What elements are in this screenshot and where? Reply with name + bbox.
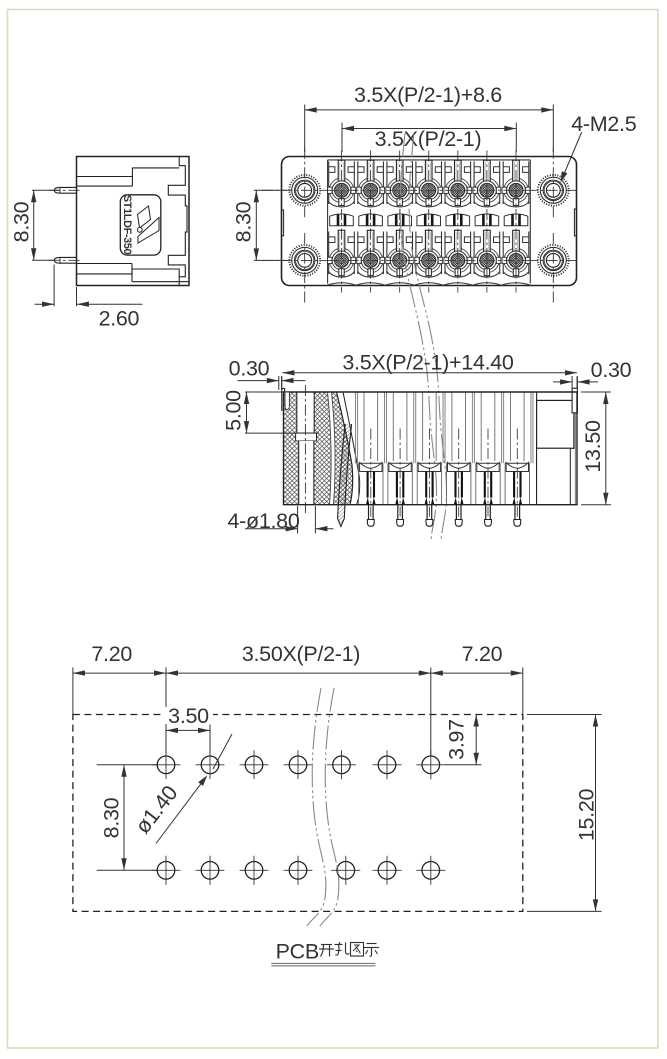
svg-text:7.20: 7.20 bbox=[91, 642, 132, 666]
svg-text:5.00: 5.00 bbox=[222, 390, 246, 431]
svg-text:ST1LDF-350: ST1LDF-350 bbox=[121, 195, 133, 255]
svg-text:3.5X(P/2-1)+14.40: 3.5X(P/2-1)+14.40 bbox=[342, 351, 514, 375]
svg-text:7.20: 7.20 bbox=[462, 642, 503, 666]
svg-text:PCB: PCB bbox=[276, 940, 319, 964]
svg-text:4-ø1.80: 4-ø1.80 bbox=[228, 509, 300, 533]
svg-text:2.60: 2.60 bbox=[99, 307, 140, 331]
svg-text:3.5X(P/2-1)+8.6: 3.5X(P/2-1)+8.6 bbox=[354, 83, 502, 107]
svg-text:0.30: 0.30 bbox=[591, 358, 632, 382]
svg-text:15.20: 15.20 bbox=[575, 789, 599, 842]
svg-text:3.50: 3.50 bbox=[168, 704, 209, 728]
svg-text:3.50X(P/2-1): 3.50X(P/2-1) bbox=[242, 642, 360, 666]
svg-text:8.30: 8.30 bbox=[10, 201, 34, 242]
svg-text:3.5X(P/2-1): 3.5X(P/2-1) bbox=[375, 127, 482, 151]
svg-text:13.50: 13.50 bbox=[581, 420, 605, 473]
svg-text:0.30: 0.30 bbox=[229, 357, 270, 381]
svg-text:8.30: 8.30 bbox=[232, 201, 256, 242]
svg-text:3.97: 3.97 bbox=[445, 719, 469, 760]
svg-text:4-M2.5: 4-M2.5 bbox=[571, 112, 636, 136]
svg-text:8.30: 8.30 bbox=[100, 797, 124, 838]
